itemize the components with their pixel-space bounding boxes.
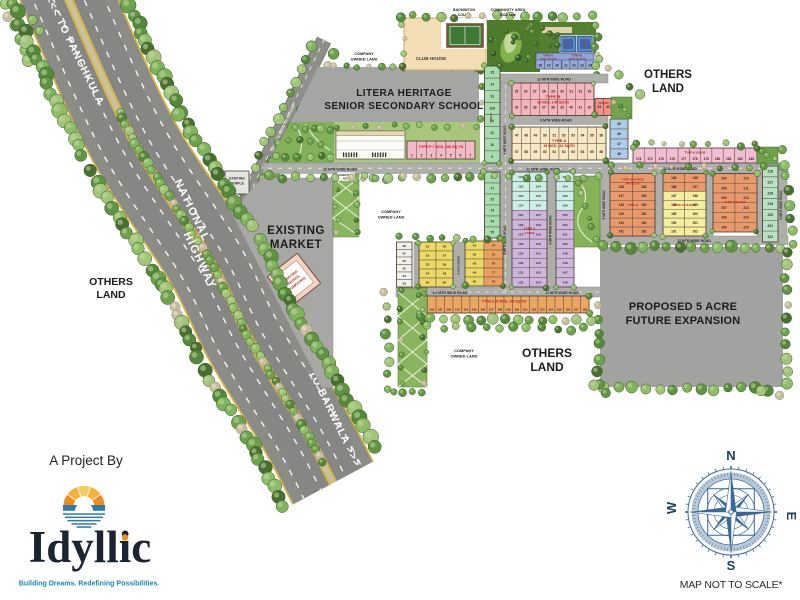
svg-text:53: 53: [426, 263, 430, 267]
svg-text:181: 181: [726, 157, 732, 161]
svg-text:12 MTR WIDE ROAD: 12 MTR WIDE ROAD: [545, 291, 579, 295]
svg-text:204: 204: [721, 177, 727, 181]
svg-text:196: 196: [693, 176, 699, 180]
svg-text:100 SQ YD: 100 SQ YD: [625, 181, 639, 185]
svg-text:3 NOS. 89 SQYD: 3 NOS. 89 SQYD: [539, 59, 556, 61]
svg-text:CLUB HOUSE: CLUB HOUSE: [416, 56, 446, 61]
svg-text:200: 200: [693, 212, 699, 216]
svg-text:40: 40: [569, 106, 573, 110]
svg-text:56: 56: [599, 133, 603, 137]
svg-text:18 NOS, 140 SQYD: 18 NOS, 140 SQYD: [537, 100, 569, 104]
svg-text:41: 41: [578, 106, 582, 110]
svg-text:57: 57: [515, 150, 519, 154]
svg-text:Building Dreams. Redefining Po: Building Dreams. Redefining Possibilitie…: [19, 581, 159, 588]
svg-text:219: 219: [767, 202, 773, 206]
svg-text:56: 56: [443, 245, 447, 249]
svg-text:137: 137: [619, 194, 625, 198]
svg-text:131: 131: [518, 271, 523, 275]
svg-text:9 MTR WIDE ROAD: 9 MTR WIDE ROAD: [503, 125, 507, 155]
svg-text:105: 105: [562, 194, 567, 198]
svg-text:75: 75: [492, 253, 496, 257]
svg-text:52: 52: [426, 254, 430, 258]
svg-text:198: 198: [693, 194, 699, 198]
svg-text:73: 73: [490, 209, 494, 213]
svg-text:124: 124: [518, 204, 523, 208]
svg-text:153: 153: [540, 308, 545, 312]
svg-text:141: 141: [438, 308, 443, 312]
svg-text:TYPE-G 18 NOS: TYPE-G 18 NOS: [674, 203, 696, 207]
svg-text:141: 141: [619, 230, 625, 234]
svg-text:95: 95: [403, 266, 407, 270]
svg-text:59: 59: [443, 272, 447, 276]
svg-text:143: 143: [455, 308, 460, 312]
svg-text:74: 74: [490, 220, 494, 224]
svg-text:186: 186: [671, 185, 677, 189]
svg-text:58: 58: [443, 263, 447, 267]
svg-text:182: 182: [737, 157, 743, 161]
svg-text:LAND: LAND: [530, 360, 564, 374]
svg-text:151: 151: [523, 308, 528, 312]
svg-text:104: 104: [562, 184, 567, 188]
svg-text:45: 45: [617, 122, 621, 126]
svg-text:187: 187: [671, 194, 677, 198]
svg-text:158: 158: [641, 185, 647, 189]
svg-text:217: 217: [767, 180, 773, 184]
svg-text:64: 64: [473, 271, 477, 275]
svg-text:142: 142: [446, 308, 451, 312]
svg-text:148: 148: [497, 308, 502, 312]
svg-text:21: 21: [564, 64, 568, 68]
svg-text:12A: 12A: [489, 107, 496, 111]
svg-text:222: 222: [767, 235, 773, 239]
svg-text:49: 49: [534, 133, 538, 137]
svg-text:25: 25: [515, 89, 519, 93]
svg-text:31: 31: [569, 89, 573, 93]
svg-text:W: W: [664, 501, 679, 514]
svg-text:OTHERS: OTHERS: [89, 276, 133, 288]
svg-text:140: 140: [619, 221, 625, 225]
svg-text:12 MTR WIDE ROAD: 12 MTR WIDE ROAD: [663, 167, 697, 171]
svg-text:4: 4: [440, 154, 442, 158]
svg-text:134: 134: [536, 184, 541, 188]
svg-text:20: 20: [555, 64, 559, 68]
svg-text:48: 48: [617, 152, 621, 156]
svg-text:191: 191: [671, 230, 677, 234]
svg-text:22: 22: [572, 64, 576, 68]
svg-text:149: 149: [562, 252, 567, 256]
svg-text:47: 47: [515, 133, 519, 137]
svg-text:COMMUNITY AREA: COMMUNITY AREA: [490, 8, 525, 12]
svg-text:161: 161: [641, 212, 647, 216]
svg-text:54: 54: [426, 272, 430, 276]
svg-text:173: 173: [636, 157, 642, 161]
svg-text:178: 178: [692, 157, 698, 161]
svg-text:5: 5: [450, 154, 452, 158]
svg-text:EXISTING: EXISTING: [229, 177, 245, 181]
svg-text:TYPE A: TYPE A: [552, 138, 566, 143]
svg-text:48: 48: [524, 133, 528, 137]
svg-text:72: 72: [490, 198, 494, 202]
svg-text:TYPE D 20 NOS. 100 SQ YD: TYPE D 20 NOS. 100 SQ YD: [482, 300, 527, 304]
svg-text:7: 7: [469, 154, 471, 158]
svg-text:15: 15: [490, 70, 494, 74]
svg-text:59: 59: [534, 150, 538, 154]
svg-text:157: 157: [574, 308, 579, 312]
svg-text:29: 29: [551, 89, 555, 93]
svg-text:44: 44: [606, 105, 610, 109]
svg-text:140: 140: [429, 308, 434, 312]
svg-text:136: 136: [536, 204, 541, 208]
svg-text:33: 33: [588, 89, 592, 93]
svg-text:66: 66: [599, 150, 603, 154]
svg-text:4 NOS. 96 SQYD: 4 NOS. 96 SQYD: [568, 58, 585, 61]
svg-text:151: 151: [562, 232, 567, 236]
svg-text:LAND: LAND: [652, 83, 684, 95]
svg-text:153: 153: [562, 213, 567, 217]
svg-text:9 MTR WIDE ROAD: 9 MTR WIDE ROAD: [602, 190, 606, 220]
svg-text:TYPE D 24 NOS: TYPE D 24 NOS: [724, 200, 746, 204]
svg-text:12 MTR WIDE ROAD: 12 MTR WIDE ROAD: [323, 167, 357, 171]
svg-text:146: 146: [480, 308, 485, 312]
svg-text:S: S: [727, 558, 736, 573]
svg-text:139: 139: [619, 212, 625, 216]
svg-text:61: 61: [473, 244, 477, 248]
svg-text:COMPANY: COMPANY: [381, 209, 401, 214]
svg-text:125: 125: [518, 213, 523, 217]
svg-text:121: 121: [518, 175, 523, 179]
svg-text:127: 127: [518, 232, 523, 236]
svg-text:60: 60: [543, 150, 547, 154]
svg-text:LITERA HERITAGE: LITERA HERITAGE: [356, 88, 451, 99]
svg-text:202: 202: [693, 230, 699, 234]
svg-text:50: 50: [543, 133, 547, 137]
svg-text:152: 152: [562, 223, 567, 227]
svg-text:55: 55: [590, 133, 594, 137]
svg-text:216: 216: [767, 170, 773, 174]
svg-text:58: 58: [524, 150, 528, 154]
svg-text:218: 218: [767, 191, 773, 195]
svg-text:152: 152: [531, 308, 536, 312]
svg-text:96: 96: [403, 259, 407, 263]
svg-text:98: 98: [403, 244, 407, 248]
svg-text:18: 18: [538, 64, 542, 68]
svg-text:38: 38: [551, 106, 555, 110]
svg-text:57: 57: [443, 254, 447, 258]
svg-text:221: 221: [767, 224, 773, 228]
svg-text:9: 9: [491, 155, 493, 159]
svg-text:180: 180: [715, 157, 721, 161]
svg-text:158: 158: [582, 308, 587, 312]
svg-text:65: 65: [473, 280, 477, 284]
svg-text:MARKET: MARKET: [270, 239, 322, 251]
svg-text:6: 6: [459, 154, 461, 158]
svg-text:37: 37: [542, 106, 546, 110]
svg-text:190: 190: [671, 221, 677, 225]
svg-text:123: 123: [518, 194, 523, 198]
svg-text:64: 64: [581, 150, 585, 154]
svg-text:TYPE-E: TYPE-E: [489, 113, 493, 123]
svg-text:130: 130: [518, 261, 523, 265]
svg-text:9 MTR WIDE ROAD: 9 MTR WIDE ROAD: [779, 190, 783, 220]
svg-text:23: 23: [580, 64, 584, 68]
svg-text:122: 122: [518, 184, 523, 188]
svg-text:156: 156: [565, 308, 570, 312]
svg-text:47: 47: [617, 142, 621, 146]
svg-text:150: 150: [562, 242, 567, 246]
svg-text:138: 138: [536, 223, 541, 227]
svg-text:39: 39: [560, 106, 564, 110]
svg-text:24 NOS: 24 NOS: [525, 231, 535, 235]
svg-text:COMPANY: COMPANY: [354, 51, 374, 56]
svg-text:149: 149: [506, 308, 511, 312]
svg-text:77: 77: [492, 271, 496, 275]
svg-text:N: N: [726, 448, 735, 463]
svg-text:185: 185: [671, 176, 677, 180]
svg-text:78: 78: [492, 280, 496, 284]
svg-text:14: 14: [490, 82, 494, 86]
svg-text:SENIOR SECONDARY SCHOOL: SENIOR SECONDARY SCHOOL: [324, 101, 483, 112]
svg-text:63: 63: [473, 262, 477, 266]
svg-text:11: 11: [491, 131, 495, 135]
svg-text:162: 162: [641, 221, 647, 225]
svg-text:146: 146: [562, 280, 567, 284]
svg-text:209: 209: [721, 225, 727, 229]
svg-text:10: 10: [490, 143, 494, 147]
svg-text:75: 75: [490, 231, 494, 235]
svg-text:MAP NOT TO SCALE*: MAP NOT TO SCALE*: [680, 579, 783, 591]
svg-text:138: 138: [619, 203, 625, 207]
svg-text:145: 145: [472, 308, 477, 312]
svg-text:9 MTR ROAD: 9 MTR ROAD: [457, 255, 461, 275]
svg-text:183: 183: [749, 157, 755, 161]
svg-text:201: 201: [693, 221, 699, 225]
svg-text:24: 24: [588, 64, 592, 68]
svg-text:32: 32: [578, 89, 582, 93]
svg-text:144: 144: [463, 308, 468, 312]
svg-text:93: 93: [403, 281, 407, 285]
svg-text:A Project By: A Project By: [49, 453, 123, 468]
svg-text:148: 148: [562, 261, 567, 265]
svg-text:FUTURE EXPANSION: FUTURE EXPANSION: [626, 315, 741, 327]
svg-text:214: 214: [743, 216, 749, 220]
svg-text:65: 65: [590, 150, 594, 154]
svg-text:34: 34: [515, 106, 519, 110]
svg-text:13: 13: [490, 95, 494, 99]
svg-text:74: 74: [492, 244, 496, 248]
svg-text:35: 35: [524, 106, 528, 110]
svg-text:205: 205: [721, 186, 727, 190]
svg-text:54: 54: [581, 133, 585, 137]
svg-text:61: 61: [552, 150, 556, 154]
svg-text:BADMINTON: BADMINTON: [453, 8, 475, 12]
svg-text:208: 208: [721, 216, 727, 220]
svg-text:176: 176: [670, 157, 676, 161]
svg-text:140: 140: [536, 242, 541, 246]
svg-text:TYPE-H1: TYPE-H1: [572, 54, 584, 58]
svg-text:55: 55: [426, 281, 430, 285]
svg-text:141: 141: [536, 252, 541, 256]
svg-text:EXISTING: EXISTING: [267, 225, 325, 237]
svg-text:62: 62: [562, 150, 566, 154]
svg-text:220: 220: [767, 213, 773, 217]
svg-text:147: 147: [562, 271, 567, 275]
svg-text:E: E: [784, 512, 799, 521]
svg-text:213: 213: [743, 206, 749, 210]
svg-text:26: 26: [524, 89, 528, 93]
svg-text:60: 60: [443, 281, 447, 285]
svg-text:155: 155: [557, 308, 562, 312]
svg-text:43: 43: [597, 105, 601, 109]
svg-text:46: 46: [617, 132, 621, 136]
svg-text:177: 177: [681, 157, 687, 161]
svg-text:142: 142: [536, 261, 541, 265]
svg-text:63: 63: [571, 150, 575, 154]
svg-text:159: 159: [641, 194, 647, 198]
svg-text:97: 97: [403, 251, 407, 255]
svg-text:1: 1: [411, 154, 413, 158]
svg-text:210: 210: [743, 177, 749, 181]
svg-text:OWNED LAND: OWNED LAND: [378, 215, 405, 220]
svg-text:2432 sqm: 2432 sqm: [500, 13, 516, 17]
svg-text:139: 139: [536, 232, 541, 236]
svg-text:19: 19: [547, 64, 551, 68]
svg-text:207: 207: [721, 206, 727, 210]
svg-text:TYPE-F 7 NOS. 150 SQ YD: TYPE-F 7 NOS. 150 SQ YD: [419, 145, 464, 149]
svg-text:62: 62: [473, 253, 477, 257]
svg-text:135: 135: [536, 194, 541, 198]
svg-text:144: 144: [536, 280, 541, 284]
svg-text:150: 150: [514, 308, 519, 312]
svg-text:TYPE-B1: TYPE-B1: [598, 102, 609, 105]
svg-text:143: 143: [536, 271, 541, 275]
svg-text:TYPE D: TYPE D: [627, 203, 639, 207]
svg-text:30: 30: [560, 89, 564, 93]
svg-text:51: 51: [426, 245, 430, 249]
svg-text:147: 147: [489, 308, 494, 312]
svg-text:OTHERS: OTHERS: [522, 346, 572, 360]
svg-text:174: 174: [647, 157, 653, 161]
svg-text:19 NOS, 111 SQYD: 19 NOS, 111 SQYD: [543, 144, 575, 148]
svg-text:189: 189: [671, 212, 677, 216]
svg-text:OWNED LAND: OWNED LAND: [351, 57, 378, 62]
svg-text:163: 163: [641, 230, 647, 234]
svg-text:PROPOSED 5 ACRE: PROPOSED 5 ACRE: [629, 301, 737, 313]
svg-text:27: 27: [533, 89, 537, 93]
svg-text:42: 42: [588, 106, 592, 110]
svg-text:COMPANY: COMPANY: [454, 348, 474, 353]
svg-text:TYPE B: TYPE B: [546, 94, 561, 99]
svg-text:36: 36: [533, 106, 537, 110]
svg-text:94: 94: [403, 274, 407, 278]
svg-text:28: 28: [542, 89, 546, 93]
svg-text:128: 128: [518, 242, 523, 246]
svg-text:76: 76: [492, 262, 496, 266]
svg-text:11 MTR WIDE ROAD: 11 MTR WIDE ROAD: [537, 78, 571, 82]
svg-text:Idyllic: Idyllic: [29, 522, 152, 572]
svg-text:179: 179: [704, 157, 710, 161]
svg-text:197: 197: [693, 185, 699, 189]
svg-text:154: 154: [548, 308, 553, 312]
svg-text:136: 136: [619, 185, 625, 189]
svg-text:71: 71: [490, 187, 494, 191]
svg-text:175: 175: [659, 157, 665, 161]
svg-text:TYPE-H: TYPE-H: [543, 54, 553, 58]
svg-text:OWNED LAND: OWNED LAND: [451, 354, 478, 359]
svg-text:211: 211: [743, 186, 748, 190]
svg-text:3: 3: [430, 154, 432, 158]
svg-text:LAND: LAND: [96, 289, 126, 301]
svg-text:53: 53: [571, 133, 575, 137]
svg-text:OTHERS: OTHERS: [644, 69, 692, 81]
svg-text:2: 2: [421, 154, 423, 158]
svg-text:137: 137: [536, 213, 541, 217]
svg-text:106: 106: [562, 204, 567, 208]
svg-text:TYPE-H 13 NOS: TYPE-H 13 NOS: [685, 151, 706, 155]
svg-text:160: 160: [641, 203, 647, 207]
svg-text:132: 132: [518, 280, 523, 284]
svg-text:129: 129: [518, 252, 523, 256]
svg-text:9 MTR WIDE ROAD: 9 MTR WIDE ROAD: [549, 215, 553, 245]
svg-text:215: 215: [743, 225, 749, 229]
svg-text:9 MTR WIDE ROAD: 9 MTR WIDE ROAD: [540, 119, 572, 123]
svg-text:9.0 MTR WIDE ROAD: 9.0 MTR WIDE ROAD: [433, 291, 468, 295]
